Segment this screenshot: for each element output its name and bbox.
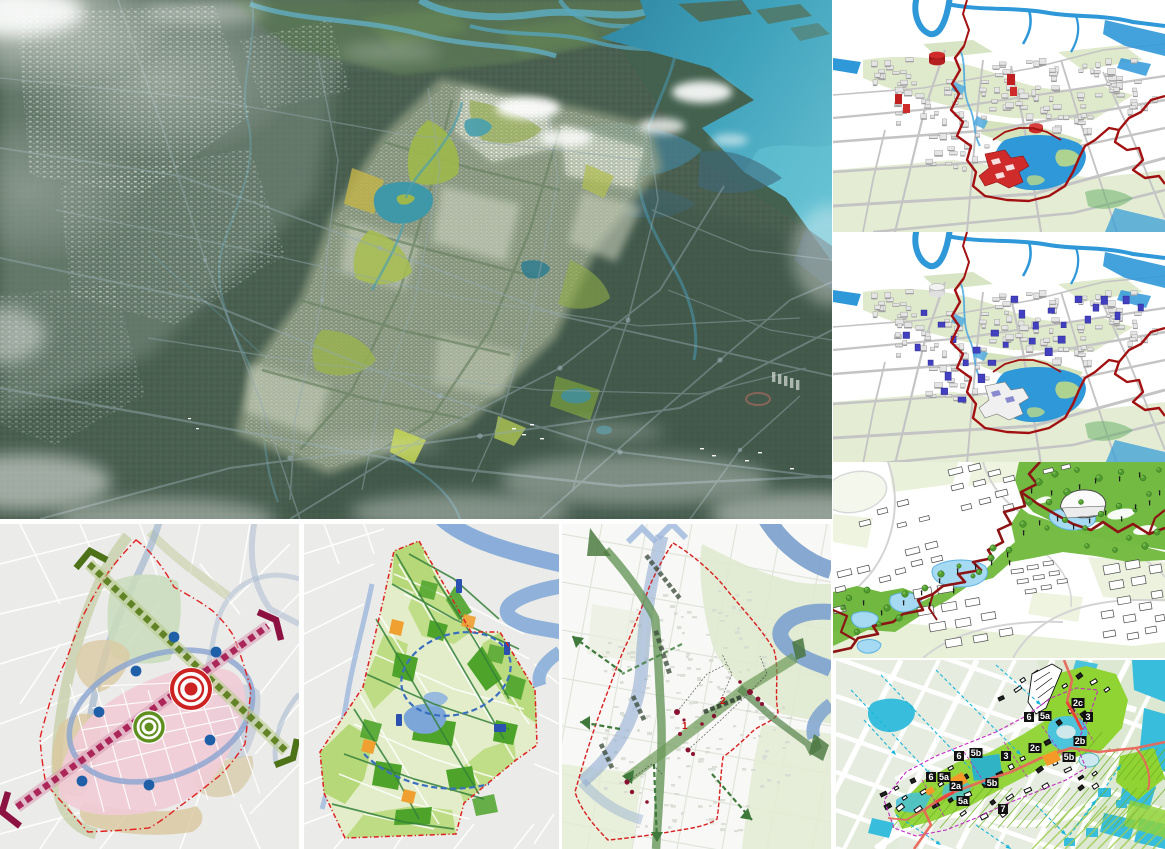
svg-text:2c: 2c xyxy=(1073,698,1083,708)
svg-text:5b: 5b xyxy=(1064,752,1075,762)
svg-text:2c: 2c xyxy=(1030,743,1040,753)
svg-text:5a: 5a xyxy=(939,772,950,782)
svg-text:6: 6 xyxy=(928,772,933,782)
svg-text:7: 7 xyxy=(1000,804,1005,814)
svg-text:2: 2 xyxy=(720,696,726,707)
svg-text:1: 1 xyxy=(682,721,688,732)
svg-text:3: 3 xyxy=(1085,712,1090,722)
svg-text:6: 6 xyxy=(1026,712,1031,722)
svg-text:5a: 5a xyxy=(1040,711,1051,721)
svg-text:2b: 2b xyxy=(1075,736,1086,746)
svg-text:3: 3 xyxy=(1003,751,1008,761)
svg-text:5b: 5b xyxy=(971,748,982,758)
svg-text:2a: 2a xyxy=(951,781,962,791)
svg-text:5b: 5b xyxy=(987,778,998,788)
svg-text:6: 6 xyxy=(956,751,961,761)
svg-text:5a: 5a xyxy=(958,796,969,806)
